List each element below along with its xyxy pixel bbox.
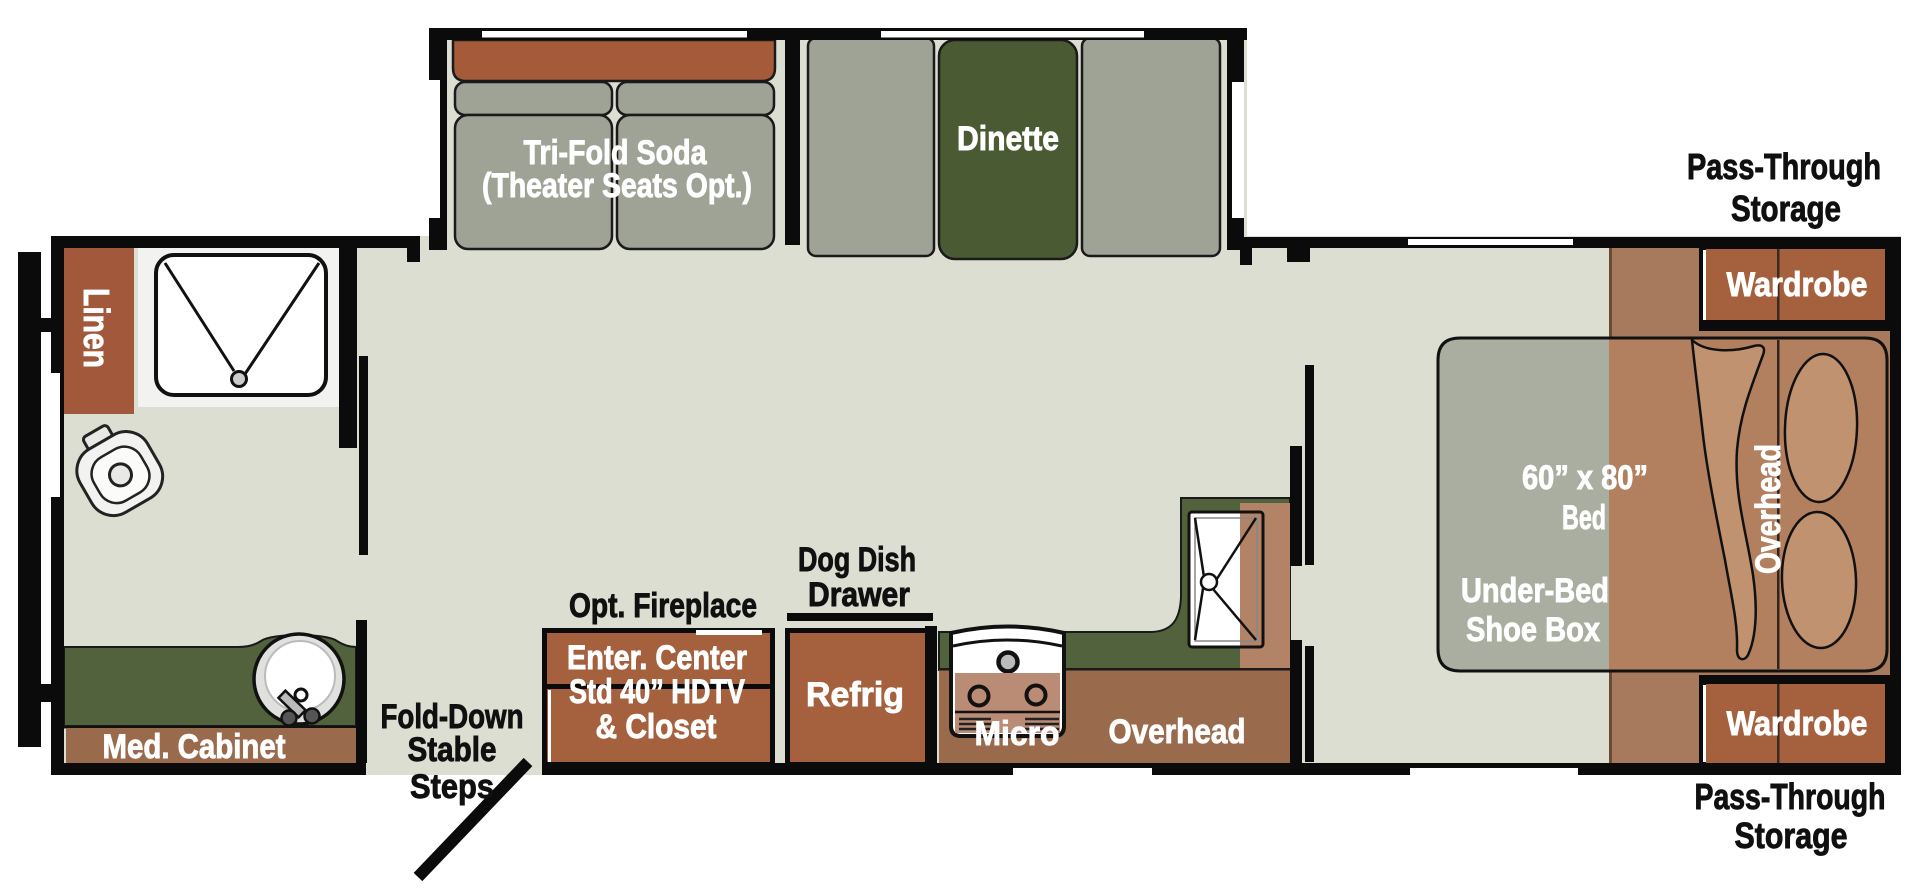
svg-text:Bed: Bed <box>1562 499 1606 537</box>
svg-text:Overhead: Overhead <box>1749 444 1788 574</box>
svg-text:Stable: Stable <box>408 731 497 769</box>
svg-text:Storage: Storage <box>1731 188 1841 229</box>
svg-text:Pass-Through: Pass-Through <box>1695 776 1886 817</box>
svg-text:Pass-Through: Pass-Through <box>1687 146 1881 187</box>
svg-text:& Closet: & Closet <box>596 708 717 746</box>
svg-text:Wardrobe: Wardrobe <box>1727 266 1868 304</box>
svg-text:Shoe Box: Shoe Box <box>1466 611 1600 649</box>
svg-text:Med. Cabinet: Med. Cabinet <box>103 728 286 766</box>
svg-text:Drawer: Drawer <box>808 576 910 614</box>
svg-text:Steps: Steps <box>410 768 494 806</box>
svg-text:Opt. Fireplace: Opt. Fireplace <box>569 587 757 625</box>
svg-text:Overhead: Overhead <box>1109 713 1246 751</box>
svg-text:60” x 80”: 60” x 80” <box>1522 459 1648 497</box>
svg-text:Storage: Storage <box>1735 815 1848 856</box>
svg-text:Std 40” HDTV: Std 40” HDTV <box>569 673 745 711</box>
svg-text:Linen: Linen <box>76 288 117 368</box>
svg-text:(Theater Seats Opt.): (Theater Seats Opt.) <box>482 167 752 205</box>
svg-text:Micro: Micro <box>975 715 1060 753</box>
svg-text:Wardrobe: Wardrobe <box>1727 705 1868 743</box>
svg-text:Refrig: Refrig <box>806 676 904 714</box>
svg-text:Enter. Center: Enter. Center <box>567 639 747 677</box>
svg-text:Dinette: Dinette <box>957 120 1059 158</box>
svg-text:Dog Dish: Dog Dish <box>798 541 916 579</box>
svg-text:Under-Bed: Under-Bed <box>1461 572 1609 610</box>
